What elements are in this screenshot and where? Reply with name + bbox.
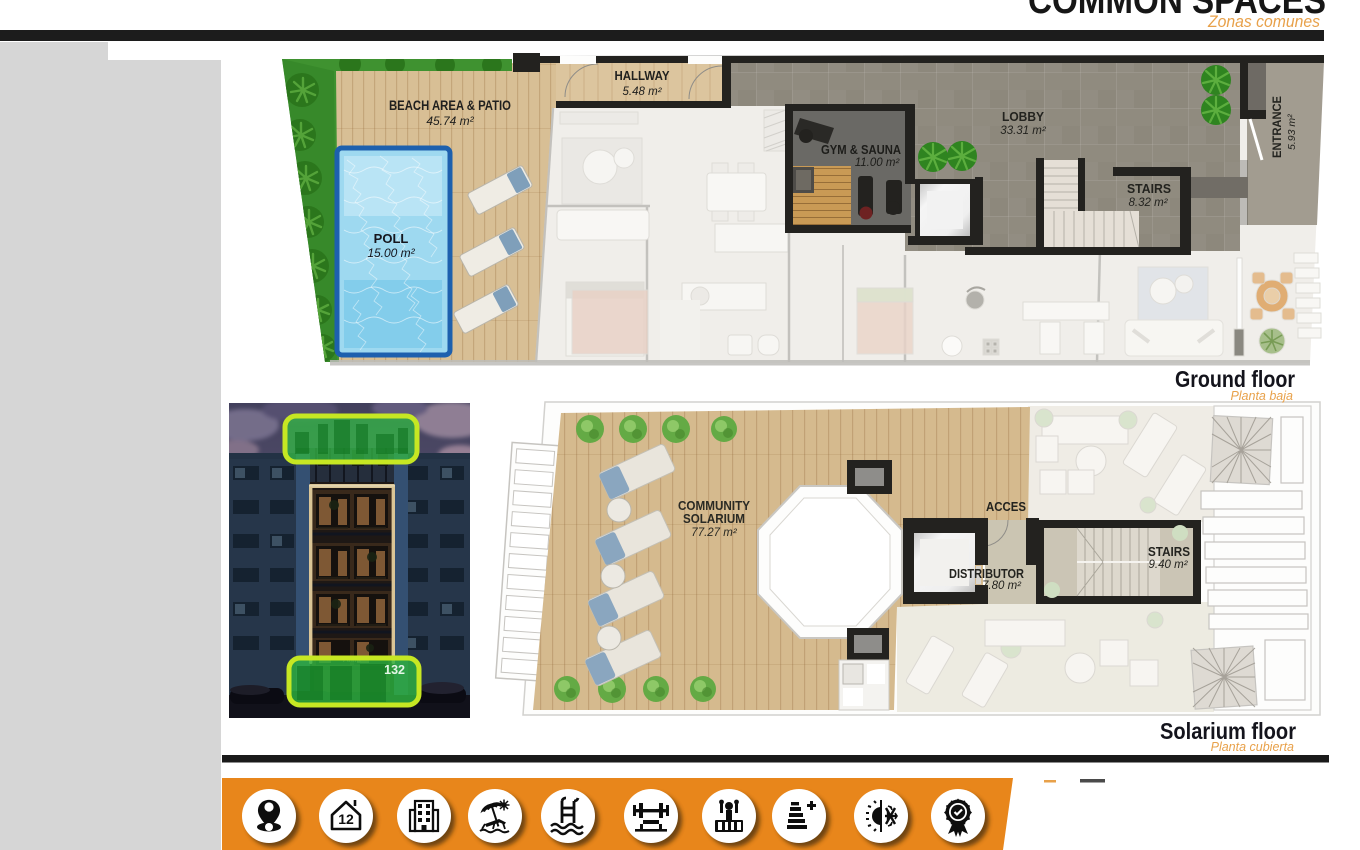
svg-text:7.80 m²: 7.80 m² — [982, 580, 1022, 592]
svg-text:5.48 m²: 5.48 m² — [623, 86, 663, 98]
svg-text:Planta cubierta: Planta cubierta — [1211, 740, 1294, 754]
svg-text:77.27 m²: 77.27 m² — [691, 527, 738, 539]
svg-text:11.00 m²: 11.00 m² — [855, 157, 901, 169]
svg-text:LOBBY: LOBBY — [1002, 109, 1044, 124]
svg-text:9.40 m²: 9.40 m² — [1149, 559, 1189, 571]
svg-text:DISTRIBUTOR: DISTRIBUTOR — [949, 566, 1025, 581]
svg-text:POLL: POLL — [374, 231, 409, 246]
svg-text:HALLWAY: HALLWAY — [615, 69, 671, 83]
svg-text:33.31 m²: 33.31 m² — [1000, 125, 1047, 137]
svg-text:12: 12 — [338, 811, 354, 827]
svg-text:BEACH AREA & PATIO: BEACH AREA & PATIO — [389, 98, 511, 113]
svg-text:5.93 m²: 5.93 m² — [1286, 114, 1298, 150]
svg-text:45.74 m²: 45.74 m² — [426, 114, 474, 128]
svg-text:ACCES: ACCES — [986, 499, 1026, 514]
svg-text:ENTRANCE: ENTRANCE — [1272, 96, 1284, 158]
svg-text:GYM & SAUNA: GYM & SAUNA — [821, 142, 902, 157]
svg-text:Planta baja: Planta baja — [1230, 389, 1293, 403]
svg-text:Zonas comunes: Zonas comunes — [1207, 12, 1320, 31]
svg-text:SOLARIUM: SOLARIUM — [683, 511, 745, 526]
svg-text:15.00 m²: 15.00 m² — [367, 246, 415, 260]
svg-text:132: 132 — [384, 663, 405, 677]
svg-text:STAIRS: STAIRS — [1148, 544, 1190, 559]
svg-text:8.32 m²: 8.32 m² — [1129, 197, 1169, 209]
svg-text:STAIRS: STAIRS — [1127, 181, 1171, 196]
